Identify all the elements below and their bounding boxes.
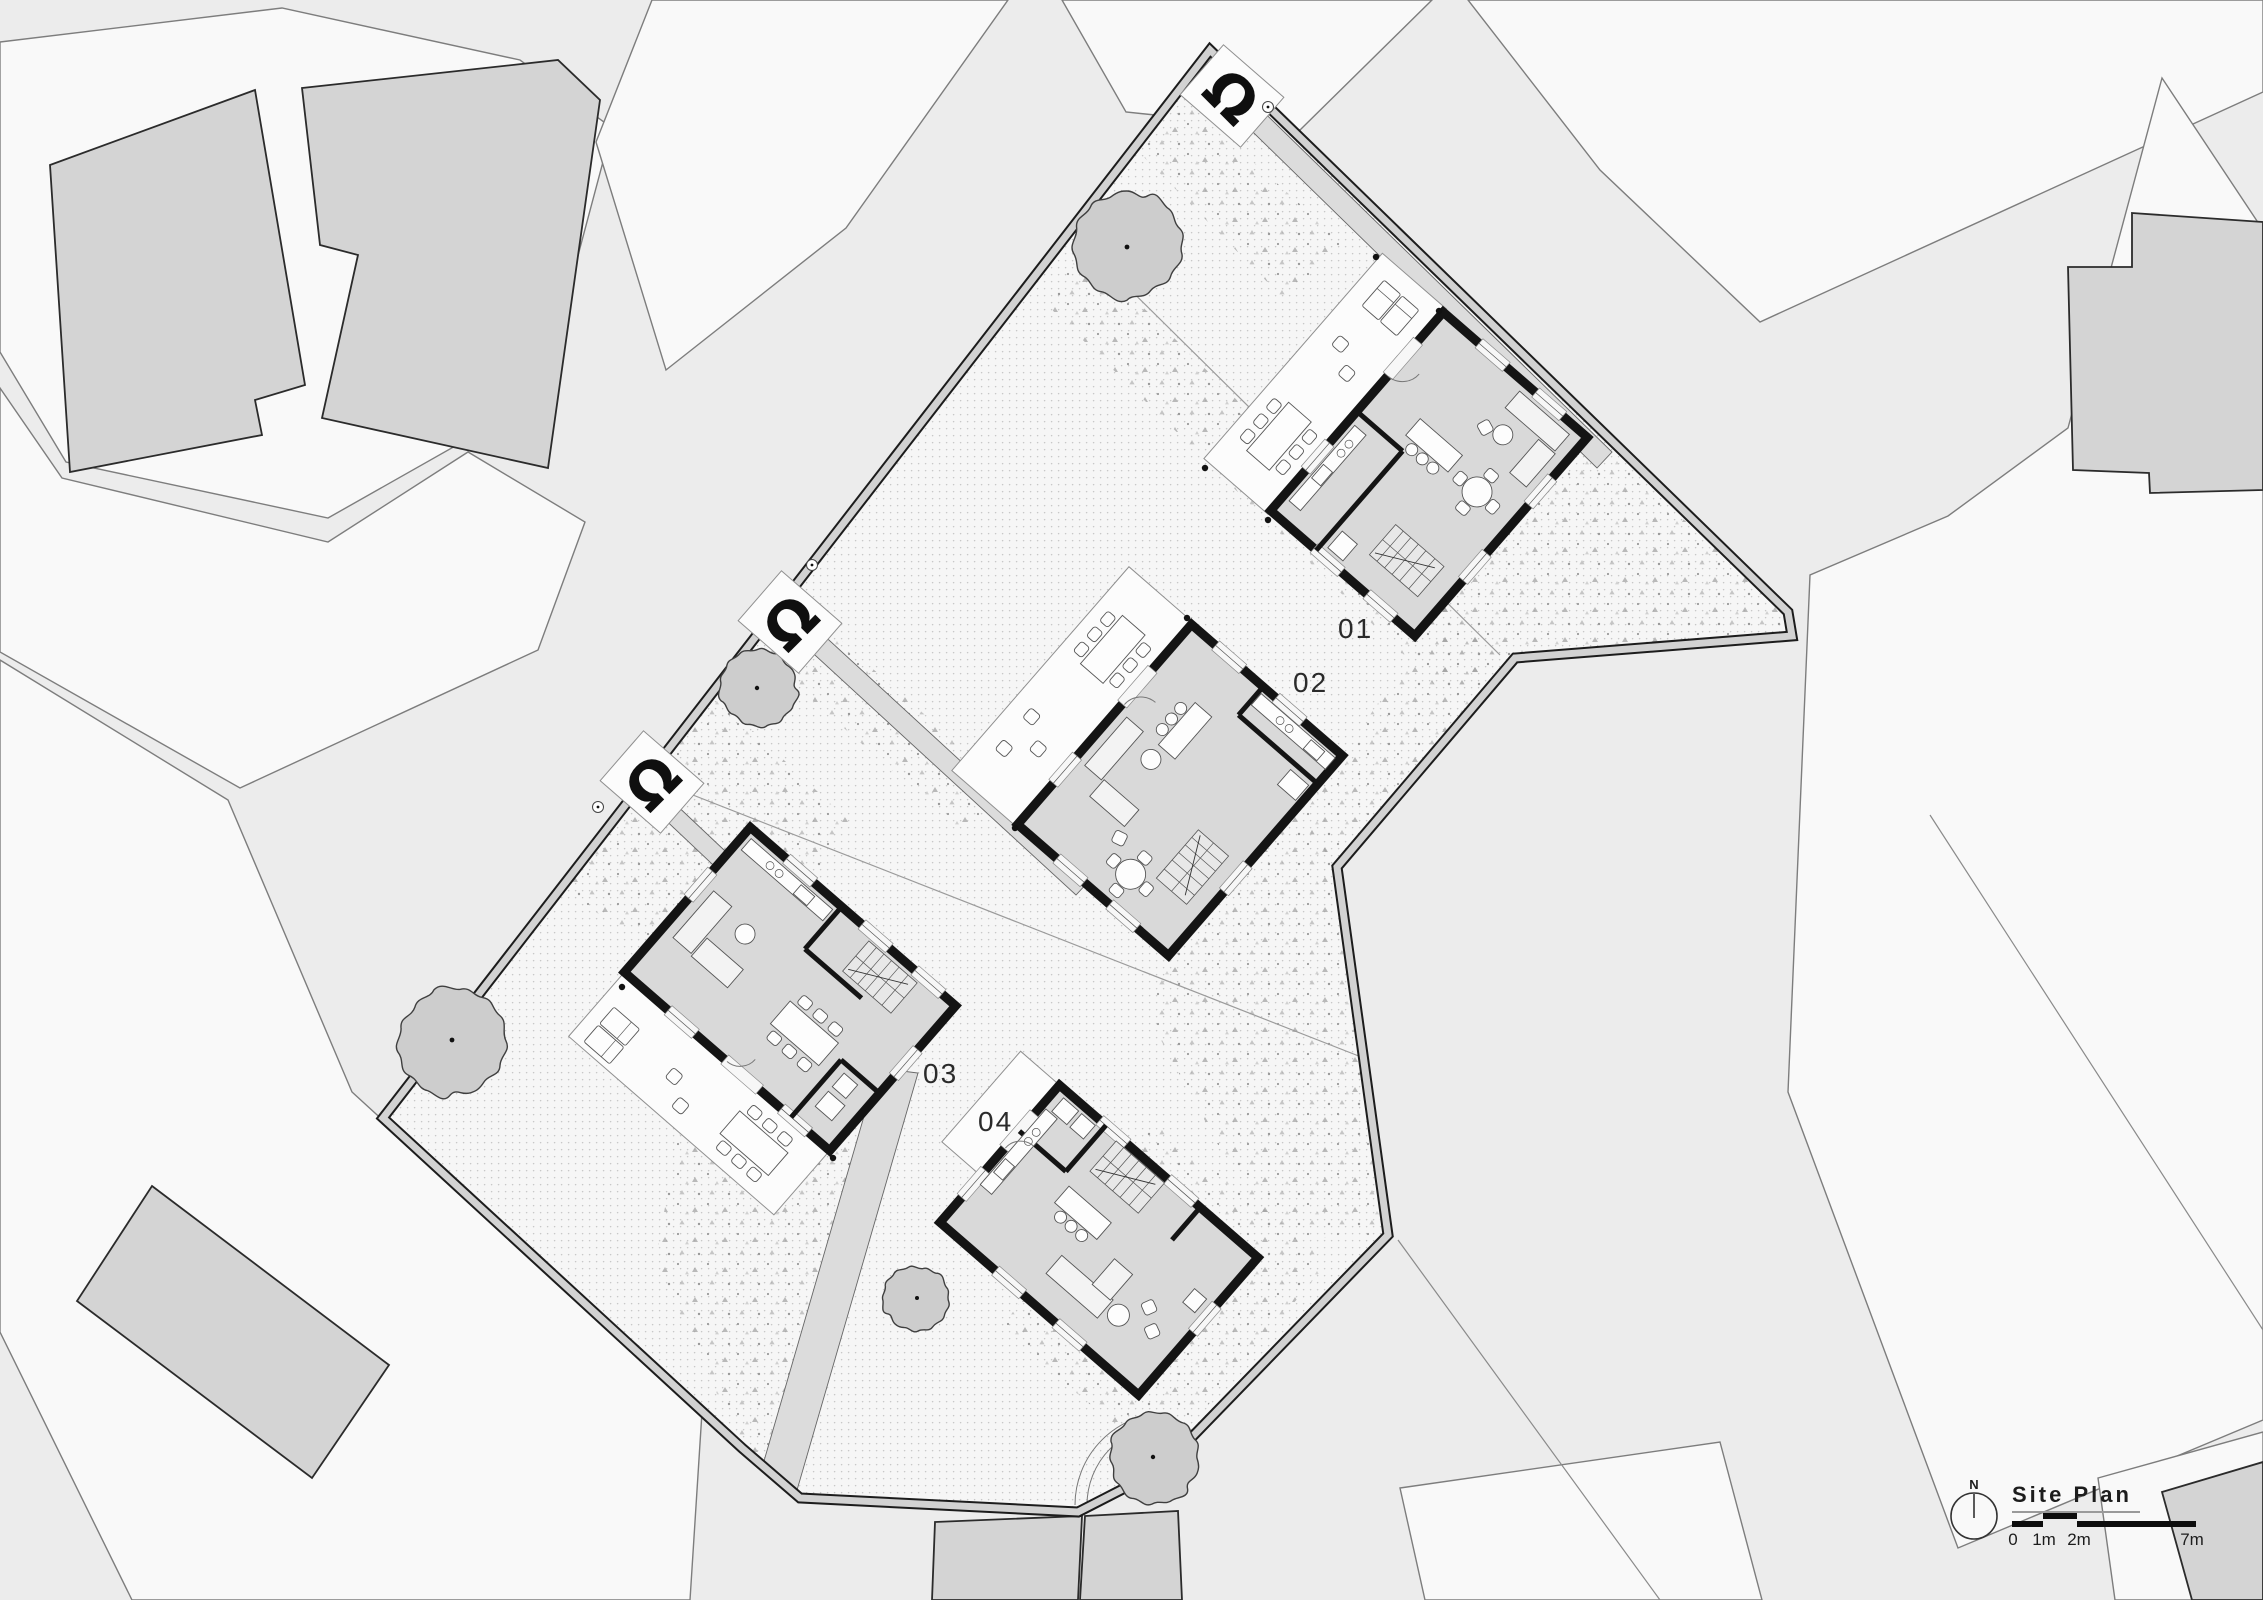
scale-tick-7m: 7m <box>2180 1530 2204 1549</box>
context-building-s-2 <box>1080 1511 1182 1600</box>
context-building-s-1 <box>932 1516 1082 1600</box>
plot-label-01: 01 <box>1338 613 1373 644</box>
plot-label-04: 04 <box>978 1106 1013 1137</box>
scale-tick-0: 0 <box>2008 1530 2017 1549</box>
plot-label-03: 03 <box>923 1058 958 1089</box>
site-plan-page: Ω Ω Ω 01 02 03 04 N S <box>0 0 2263 1600</box>
north-label: N <box>1969 1477 1978 1492</box>
drawing-title: Site Plan <box>2012 1482 2132 1507</box>
scale-tick-1m: 1m <box>2032 1530 2056 1549</box>
gate-post <box>1263 102 1274 113</box>
scale-tick-2m: 2m <box>2067 1530 2091 1549</box>
gate-post <box>807 560 818 571</box>
plot-label-02: 02 <box>1293 667 1328 698</box>
gate-post <box>593 802 604 813</box>
site-plan-canvas: Ω Ω Ω 01 02 03 04 N S <box>0 0 2263 1600</box>
